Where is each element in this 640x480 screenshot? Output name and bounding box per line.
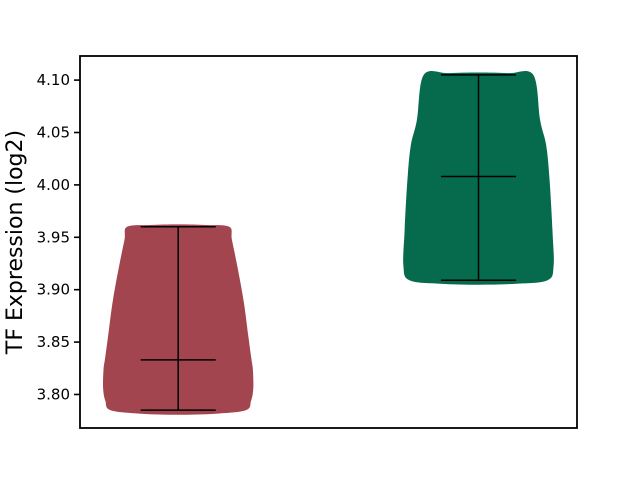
y-tick-label: 3.95 [37,228,70,246]
y-tick-label: 3.85 [37,333,70,351]
y-tick-label: 3.90 [37,281,70,299]
violins [103,71,554,415]
y-tick-label: 4.10 [37,71,70,89]
y-tick-label: 3.80 [37,385,70,403]
y-axis-label: TF Expression (log2) [3,130,28,355]
y-tick-label: 4.05 [37,123,70,141]
violin-plot: 3.803.853.903.954.004.054.10 TF Expressi… [0,0,640,480]
figure: 3.803.853.903.954.004.054.10 TF Expressi… [0,0,640,480]
y-tick-label: 4.00 [37,176,70,194]
y-axis-ticks: 3.803.853.903.954.004.054.10 [37,71,80,403]
